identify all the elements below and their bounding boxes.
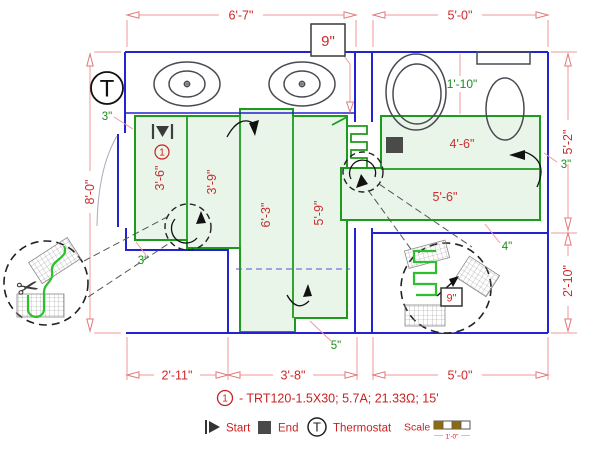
- gap-top-left-label: 3": [102, 111, 112, 123]
- spacing-leader: [344, 56, 350, 102]
- legend-start: Start: [206, 420, 251, 435]
- partition-wall-upper: [355, 52, 372, 122]
- mat-strip3-label: 6'-3": [259, 203, 273, 228]
- gap-fixture-label: 1'-10": [447, 77, 478, 91]
- legend-circuit: 1 - TRT120-1.5X30; 5.7A; 21.33Ω; 15': [218, 391, 439, 406]
- gap-bottom-left-label: 3": [138, 255, 148, 267]
- mat-right-upper-label: 4'-6": [450, 137, 475, 151]
- legend-end-label: End: [278, 423, 298, 435]
- gap-right-label: 3": [561, 159, 571, 171]
- legend-end: End: [258, 421, 298, 435]
- legend-circuit-number: 1: [222, 394, 228, 405]
- legend-thermostat: T Thermostat: [308, 418, 392, 436]
- plan-canvas: 6'-7" 5'-0" 8'-0" 5'-2" 2'-10" 2'-11" 3'…: [0, 0, 600, 450]
- legend-scale-label: Scale: [404, 422, 430, 434]
- detail-mat-piece: [405, 305, 445, 326]
- legend-thermostat-label: Thermostat: [333, 423, 392, 435]
- legend-scale-length: 1'-0": [446, 434, 460, 441]
- sink-left: [154, 62, 220, 106]
- scale-bar-segment: [452, 421, 461, 429]
- legend-scale: Scale 1'-0": [404, 421, 470, 441]
- partition-wall-lower: [355, 228, 372, 333]
- dim-right-lower: 2'-10": [561, 265, 575, 297]
- mat-right-lower-label: 5'-6": [433, 190, 458, 204]
- spacing-callout: 9": [311, 24, 345, 56]
- floor-heating-plan: 6'-7" 5'-0" 8'-0" 5'-2" 2'-10" 2'-11" 3'…: [0, 0, 600, 450]
- door-swing-arc: [97, 136, 117, 226]
- detail-spacing-label: 9": [446, 293, 456, 305]
- dim-left: 8'-0": [83, 180, 97, 205]
- legend: 1 - TRT120-1.5X30; 5.7A; 21.33Ω; 15' Sta…: [206, 391, 470, 441]
- end-marker: [386, 137, 403, 153]
- dim-bottom-right: 5'-0": [448, 369, 473, 383]
- gap-bottom-center-label: 5": [331, 340, 341, 352]
- spacing-box-label: 9": [321, 33, 335, 50]
- detail-leader: [79, 242, 171, 303]
- right-room-mat: [341, 116, 540, 220]
- start-icon-triangle: [209, 421, 220, 433]
- thermostat-marker: T: [91, 72, 123, 104]
- dim-bottom-mid: 3'-8": [281, 369, 306, 383]
- end-icon: [258, 421, 271, 434]
- circuit-number: 1: [159, 148, 165, 159]
- legend-circuit-text: - TRT120-1.5X30; 5.7A; 21.33Ω; 15': [239, 392, 439, 406]
- legend-start-label: Start: [226, 423, 251, 435]
- dim-bottom-left: 2'-11": [162, 369, 193, 383]
- dim-top-right: 5'-0": [448, 9, 473, 23]
- mat-strip1-label: 3'-6": [153, 166, 167, 191]
- scale-bar-segment: [434, 421, 443, 429]
- mat-strip4-label: 5'-9": [312, 201, 326, 226]
- sink-right: [269, 62, 335, 106]
- gap-right-bottom-label: 4": [502, 241, 512, 253]
- thermostat-letter: T: [100, 76, 115, 103]
- legend-thermostat-letter: T: [313, 420, 321, 435]
- dim-right-upper: 5'-2": [561, 130, 575, 155]
- dim-top-left: 6'-7": [229, 9, 254, 23]
- mat-strip2-label: 3'-9": [205, 170, 219, 195]
